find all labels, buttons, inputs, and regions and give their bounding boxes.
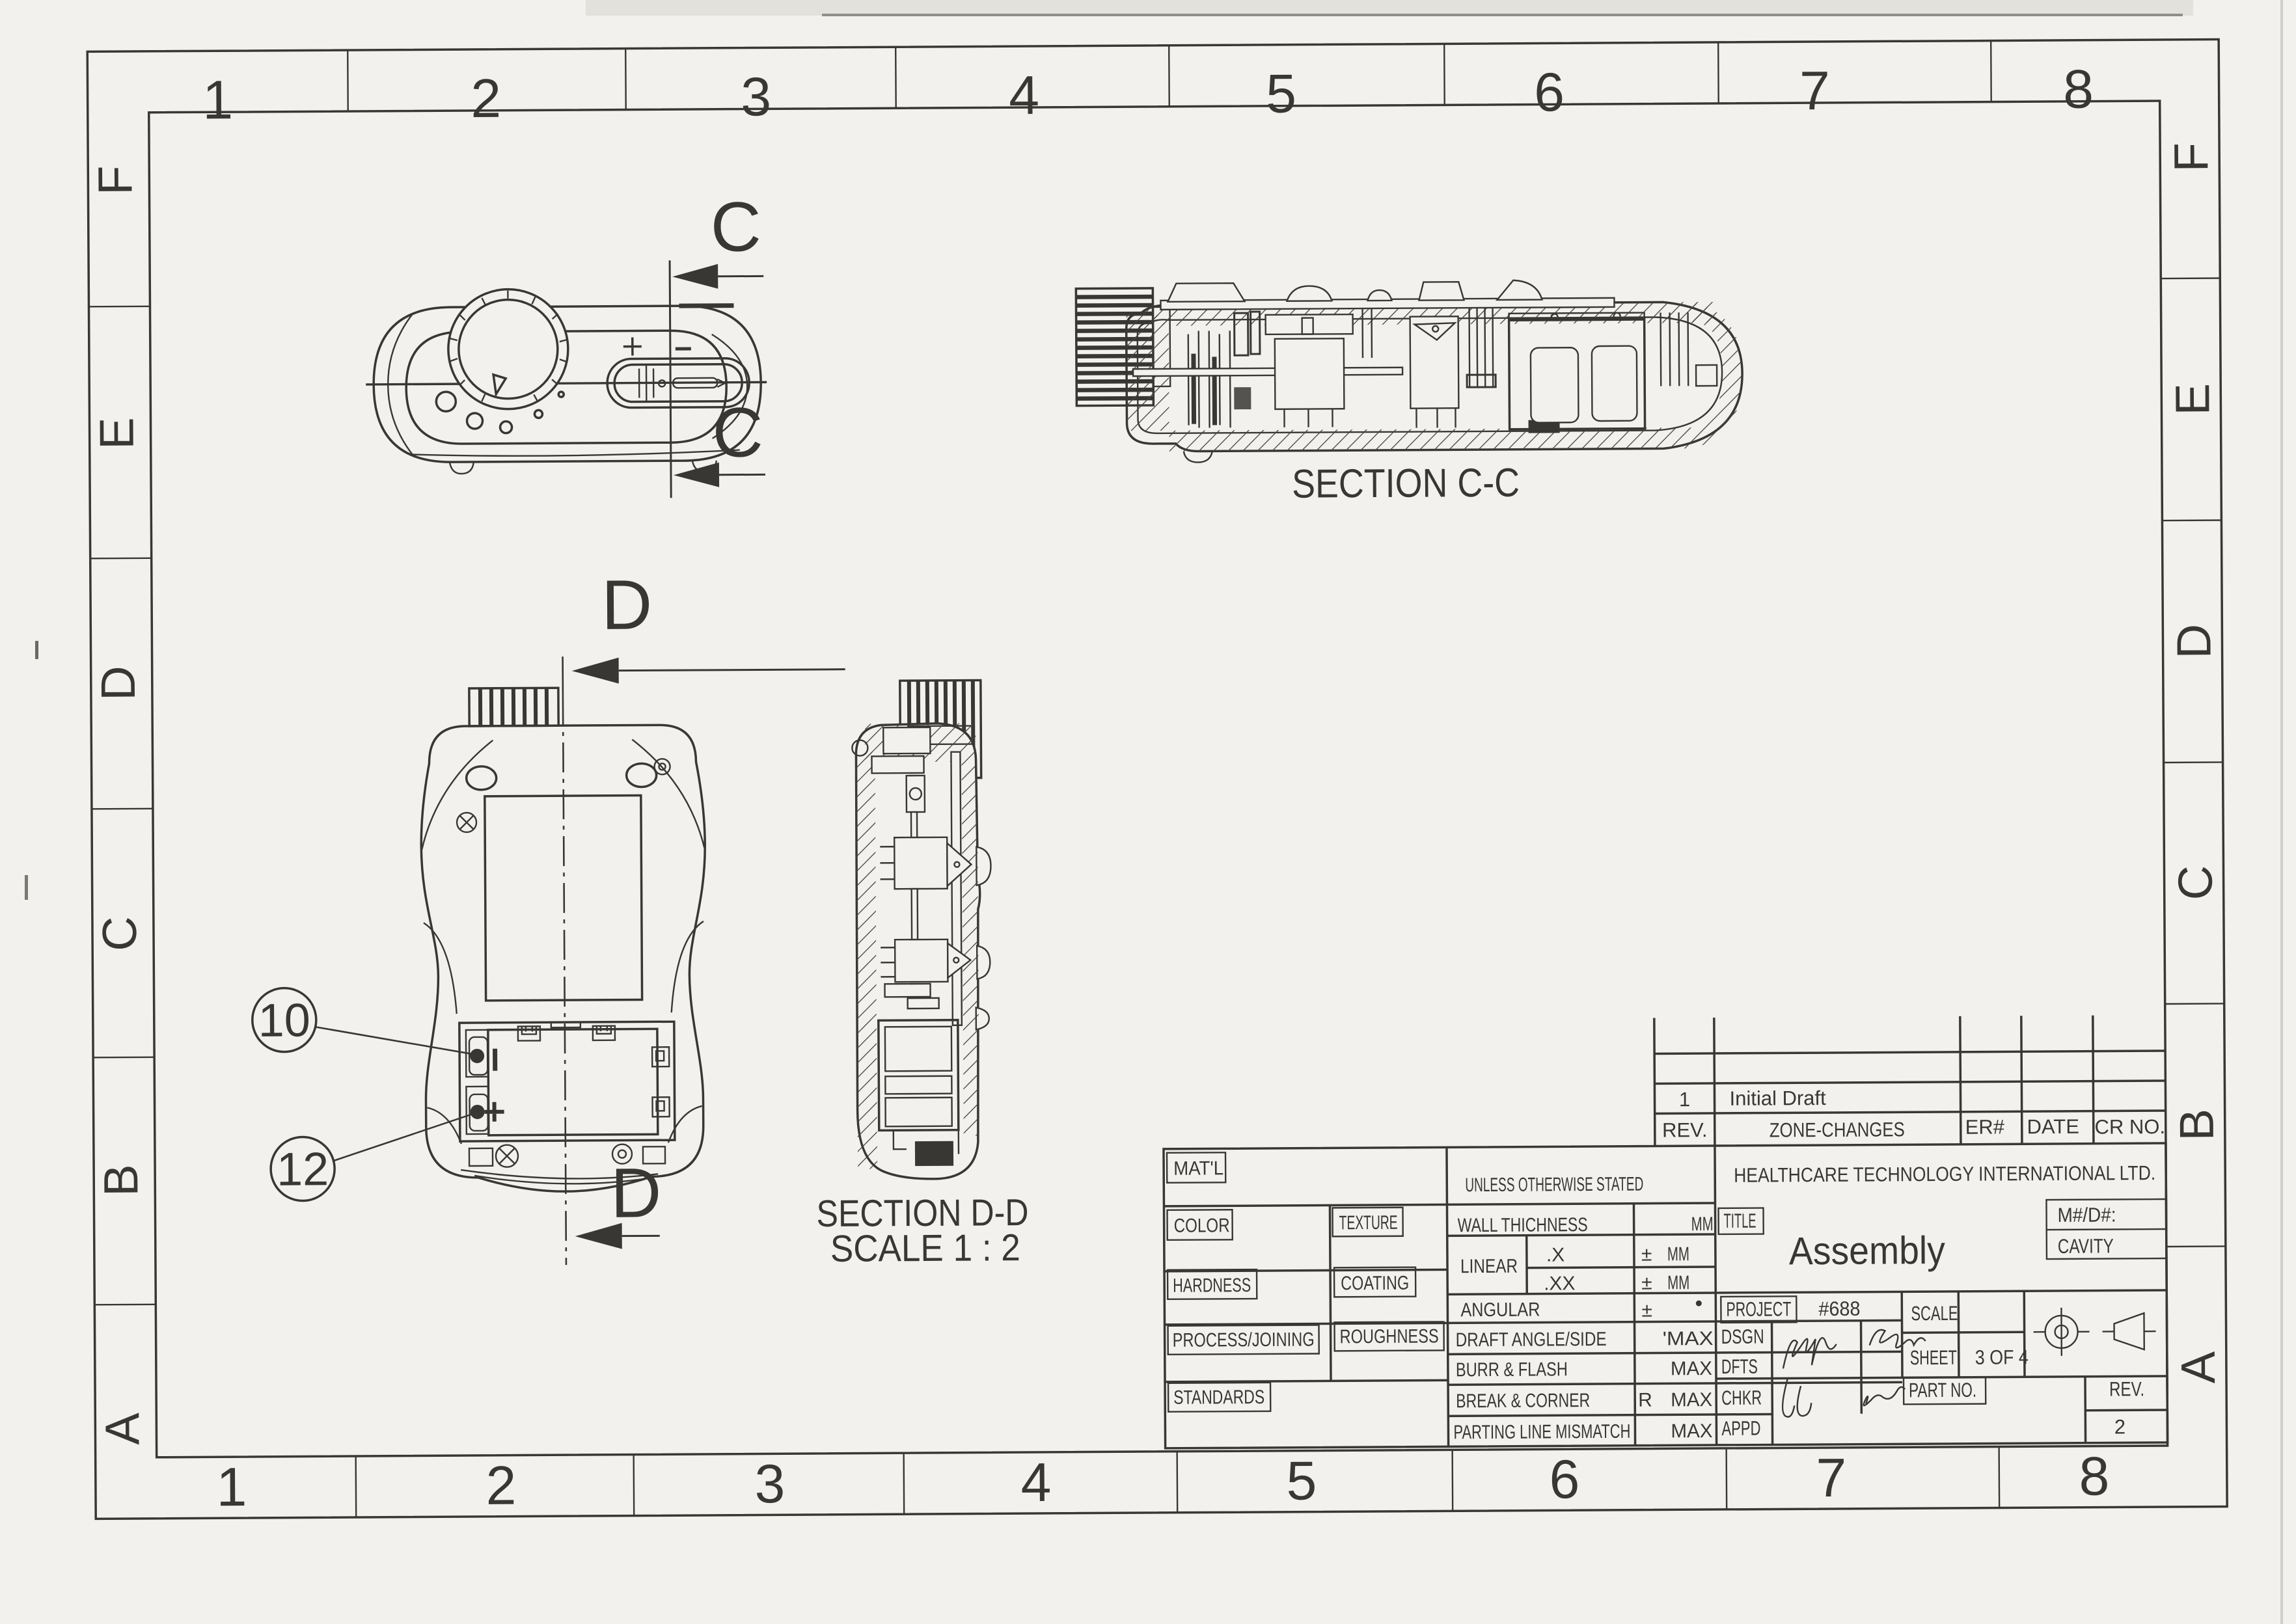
svg-text:DATE: DATE xyxy=(2027,1115,2079,1138)
svg-text:UNLESS OTHERWISE STATED: UNLESS OTHERWISE STATED xyxy=(1465,1174,1643,1197)
svg-text:6: 6 xyxy=(1549,1448,1579,1509)
svg-text:WALL THICHNESS: WALL THICHNESS xyxy=(1458,1214,1588,1236)
svg-text:C: C xyxy=(92,916,146,951)
svg-text:±: ± xyxy=(1641,1244,1652,1265)
svg-text:HARDNESS: HARDNESS xyxy=(1173,1275,1251,1297)
svg-text:5: 5 xyxy=(1266,63,1296,124)
svg-text:4: 4 xyxy=(1020,1452,1051,1513)
svg-text:DSGN: DSGN xyxy=(1721,1325,1764,1348)
svg-text:±: ± xyxy=(1641,1300,1652,1321)
svg-text:A: A xyxy=(95,1413,149,1445)
svg-text:4: 4 xyxy=(1009,64,1039,126)
svg-text:8: 8 xyxy=(2079,1446,2109,1507)
svg-text:Assembly: Assembly xyxy=(1789,1228,1945,1273)
svg-text:2: 2 xyxy=(485,1455,516,1516)
svg-text:3: 3 xyxy=(741,66,771,127)
svg-text:COLOR: COLOR xyxy=(1174,1215,1230,1236)
svg-text:CHKR: CHKR xyxy=(1721,1387,1762,1409)
svg-text:2: 2 xyxy=(471,68,501,129)
svg-text:F: F xyxy=(2164,142,2218,172)
svg-text:SCALE 1 : 2: SCALE 1 : 2 xyxy=(830,1226,1020,1270)
svg-text:REV.: REV. xyxy=(1662,1118,1708,1141)
svg-text:B: B xyxy=(2170,1109,2224,1141)
svg-text:R: R xyxy=(1638,1390,1652,1411)
svg-text:2: 2 xyxy=(2114,1415,2125,1438)
svg-text:1: 1 xyxy=(202,69,233,130)
svg-text:BURR & FLASH: BURR & FLASH xyxy=(1456,1359,1568,1381)
svg-text:3: 3 xyxy=(754,1453,785,1514)
svg-text:D: D xyxy=(91,666,145,701)
svg-text:PROCESS/JOINING: PROCESS/JOINING xyxy=(1173,1329,1315,1351)
svg-text:MM: MM xyxy=(1667,1243,1689,1265)
svg-text:C: C xyxy=(710,187,761,265)
svg-text:ER#: ER# xyxy=(1965,1115,2005,1138)
svg-text:DFTS: DFTS xyxy=(1721,1355,1758,1378)
svg-text:COATING: COATING xyxy=(1341,1273,1409,1295)
svg-text:C: C xyxy=(2168,865,2222,900)
svg-text:CAVITY: CAVITY xyxy=(2058,1234,2114,1257)
svg-text:PROJECT: PROJECT xyxy=(1726,1297,1791,1321)
svg-text:APPD: APPD xyxy=(1721,1417,1760,1440)
svg-text:SHEET: SHEET xyxy=(1910,1346,1957,1369)
svg-text:±: ± xyxy=(1641,1273,1652,1294)
svg-text:REV.: REV. xyxy=(2109,1377,2144,1400)
svg-text:ANGULAR: ANGULAR xyxy=(1460,1299,1540,1321)
svg-text:E: E xyxy=(89,417,143,450)
svg-text:HEALTHCARE TECHNOLOGY INTERNAT: HEALTHCARE TECHNOLOGY INTERNATIONAL LTD. xyxy=(1734,1161,2155,1187)
svg-text:TITLE: TITLE xyxy=(1724,1210,1756,1232)
svg-text:PARTING LINE MISMATCH: PARTING LINE MISMATCH xyxy=(1453,1421,1630,1444)
svg-text:BREAK & CORNER: BREAK & CORNER xyxy=(1456,1390,1590,1412)
svg-text:Initial Draft: Initial Draft xyxy=(1729,1087,1826,1110)
svg-text:'MAX: 'MAX xyxy=(1663,1328,1714,1349)
svg-text:ZONE-CHANGES: ZONE-CHANGES xyxy=(1770,1118,1905,1141)
svg-text:MM: MM xyxy=(1691,1213,1714,1235)
svg-text:.XX: .XX xyxy=(1544,1273,1576,1294)
svg-text:5: 5 xyxy=(1286,1450,1317,1511)
svg-text:1: 1 xyxy=(1679,1088,1690,1111)
svg-text:MAX: MAX xyxy=(1671,1358,1712,1379)
svg-text:6: 6 xyxy=(1534,61,1565,122)
svg-text:MAX: MAX xyxy=(1671,1389,1712,1411)
svg-text:PART NO.: PART NO. xyxy=(1909,1379,1976,1402)
svg-text:STANDARDS: STANDARDS xyxy=(1173,1387,1264,1409)
svg-text:M#/D#:: M#/D#: xyxy=(2057,1203,2116,1226)
svg-text:TEXTURE: TEXTURE xyxy=(1339,1212,1398,1234)
svg-text:7: 7 xyxy=(1799,60,1830,121)
svg-text:ROUGHNESS: ROUGHNESS xyxy=(1340,1325,1439,1347)
svg-text:MAX: MAX xyxy=(1671,1420,1712,1442)
svg-text:8: 8 xyxy=(2063,59,2094,120)
svg-text:3 OF 4: 3 OF 4 xyxy=(1975,1346,2029,1368)
svg-text:D: D xyxy=(601,565,653,643)
svg-text:LINEAR: LINEAR xyxy=(1460,1256,1518,1278)
svg-text:D: D xyxy=(610,1153,662,1232)
svg-text:SECTION C-C: SECTION C-C xyxy=(1292,461,1520,507)
svg-text:B: B xyxy=(94,1164,148,1197)
svg-text:MM: MM xyxy=(1667,1272,1689,1293)
svg-text:10: 10 xyxy=(258,994,311,1046)
svg-text:SCALE: SCALE xyxy=(1911,1302,1958,1325)
svg-text:DRAFT ANGLE/SIDE: DRAFT ANGLE/SIDE xyxy=(1456,1329,1607,1351)
svg-text:A: A xyxy=(2171,1351,2225,1383)
svg-text:.X: .X xyxy=(1546,1244,1565,1265)
svg-text:MAT'L: MAT'L xyxy=(1173,1157,1223,1179)
svg-text:E: E xyxy=(2165,383,2219,416)
svg-text:#688: #688 xyxy=(1818,1297,1860,1320)
svg-text:D: D xyxy=(2166,624,2221,659)
svg-text:7: 7 xyxy=(1816,1447,1846,1508)
svg-text:C: C xyxy=(712,392,763,471)
svg-text:F: F xyxy=(88,165,142,195)
svg-text:CR NO.: CR NO. xyxy=(2094,1115,2165,1139)
svg-text:1: 1 xyxy=(216,1456,247,1517)
svg-text:12: 12 xyxy=(277,1143,329,1195)
